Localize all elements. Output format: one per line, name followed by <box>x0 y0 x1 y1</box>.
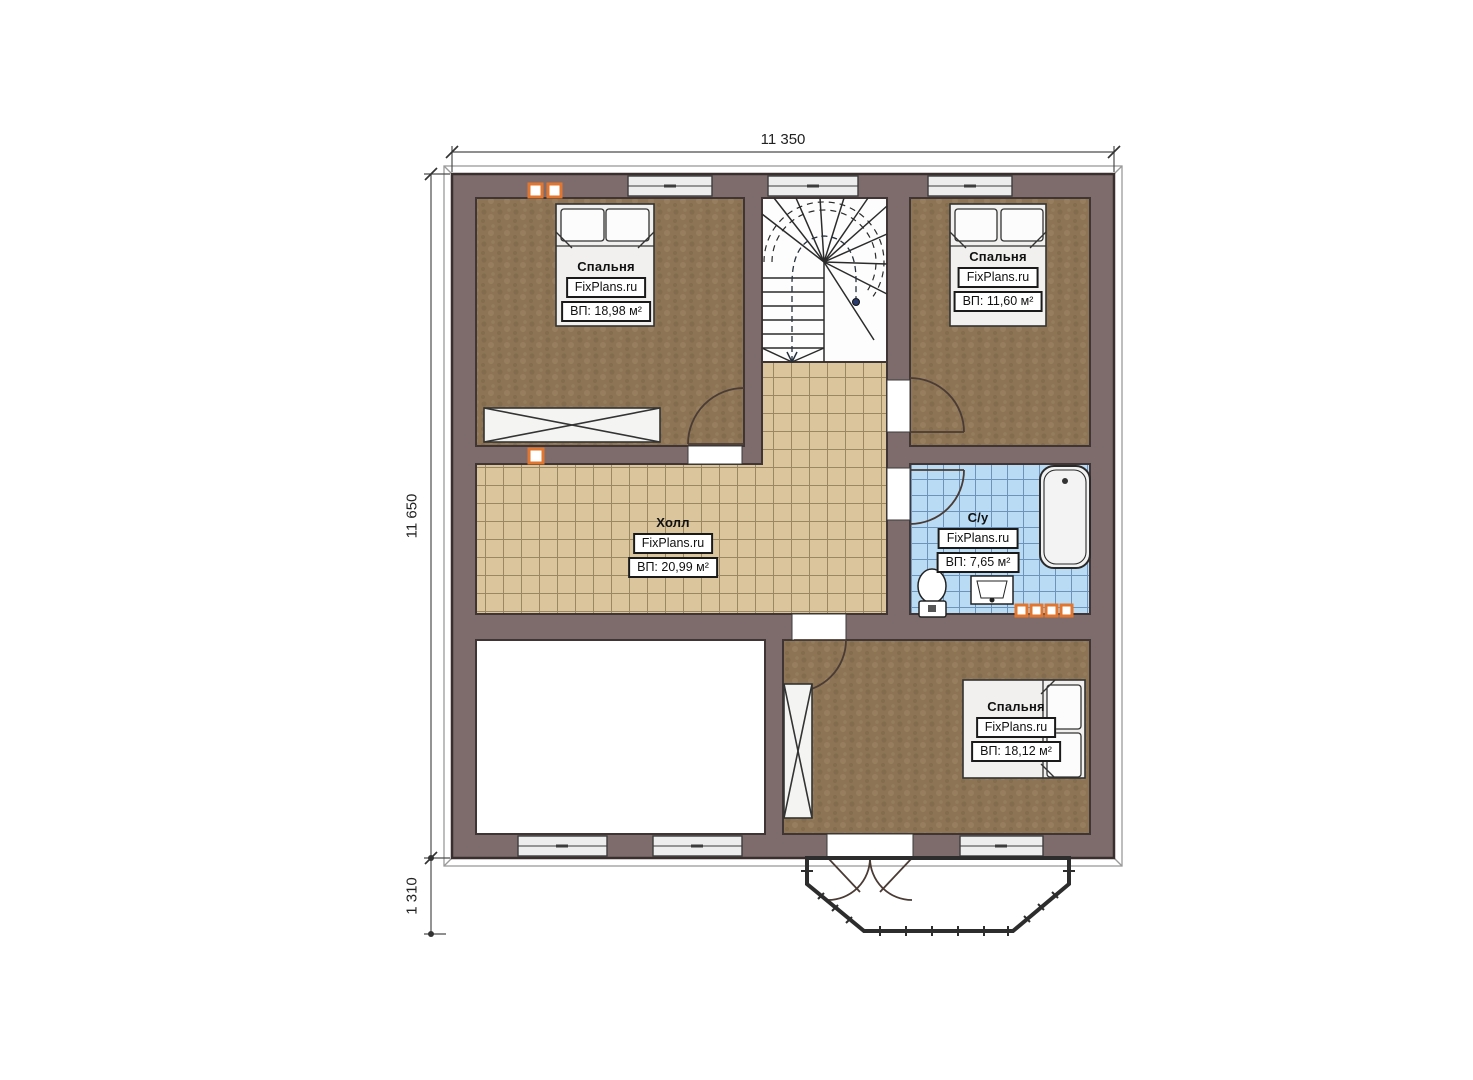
room-brand: FixPlans.ru <box>633 533 714 554</box>
wardrobe-bottom <box>784 684 812 818</box>
window-top-2 <box>928 176 1012 196</box>
dimension-height-label: 11 650 <box>404 494 421 539</box>
room-brand: FixPlans.ru <box>566 277 647 298</box>
room-label-hall: Холл FixPlans.ru ВП: 20,99 м² <box>628 515 718 578</box>
floor-room-bottom-left <box>476 640 765 834</box>
window-bottom-2 <box>653 836 742 856</box>
room-area: ВП: 18,98 м² <box>561 301 651 322</box>
room-label-bedroom-top-left: Спальня FixPlans.ru ВП: 18,98 м² <box>561 259 651 322</box>
room-area: ВП: 7,65 м² <box>937 552 1020 573</box>
toilet <box>918 569 946 617</box>
dimension-width-label: 11 350 <box>761 131 806 148</box>
room-label-bedroom-bottom: Спальня FixPlans.ru ВП: 18,12 м² <box>971 699 1061 762</box>
room-area: ВП: 11,60 м² <box>954 291 1043 312</box>
room-name: С/у <box>968 510 989 525</box>
dimension-bay-depth-label: 1 310 <box>404 877 421 915</box>
floor-plan-drawing <box>0 0 1473 1080</box>
room-brand: FixPlans.ru <box>976 717 1057 738</box>
window-top-stairs <box>768 176 858 196</box>
floor-plan-page: 11 350 11 650 1 310 Спальня FixPlans.ru … <box>0 0 1473 1080</box>
room-area: ВП: 18,12 м² <box>971 741 1061 762</box>
room-name: Спальня <box>577 259 635 274</box>
french-doors <box>828 858 912 900</box>
sink <box>971 576 1013 604</box>
room-name: Холл <box>656 515 689 530</box>
window-bottom-bedroom <box>960 836 1043 856</box>
room-brand: FixPlans.ru <box>958 267 1039 288</box>
bathtub <box>1040 466 1090 568</box>
wardrobe-top-left <box>484 408 660 442</box>
window-top-1 <box>628 176 712 196</box>
room-label-bedroom-top-right: Спальня FixPlans.ru ВП: 11,60 м² <box>954 249 1043 312</box>
room-name: Спальня <box>987 699 1045 714</box>
room-name: Спальня <box>969 249 1027 264</box>
room-brand: FixPlans.ru <box>938 528 1019 549</box>
room-area: ВП: 20,99 м² <box>628 557 718 578</box>
room-label-bathroom: С/у FixPlans.ru ВП: 7,65 м² <box>937 510 1020 573</box>
window-bottom-1 <box>518 836 607 856</box>
